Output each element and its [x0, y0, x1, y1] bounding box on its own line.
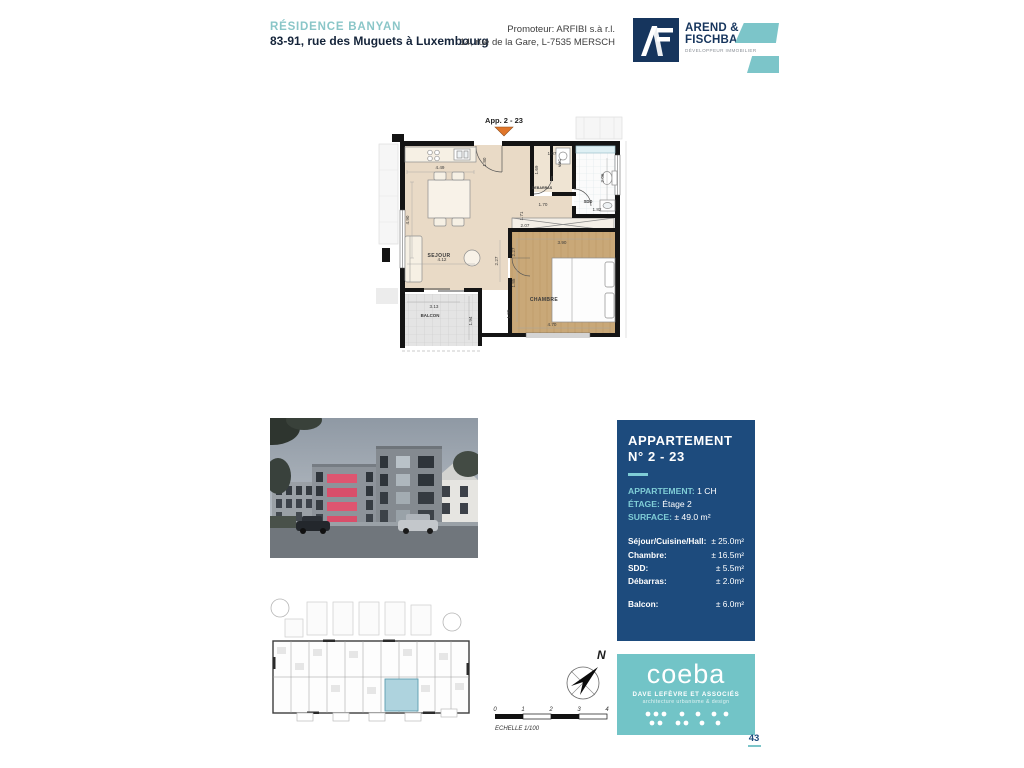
brochure-page: RÉSIDENCE BANYAN 83-91, rue des Muguets … — [0, 0, 1024, 768]
room-row-sdd: SDD:± 5.5m² — [628, 562, 744, 575]
label-debarras: DEBARRAS — [532, 186, 553, 190]
room-row-debarras: Débarras:± 2.0m² — [628, 575, 744, 588]
dim-debarras-top: 1.07 — [548, 151, 557, 156]
scale-ticks: 0 1 2 3 4 — [493, 707, 609, 713]
dim-sdd-right: 2.06 — [600, 173, 605, 182]
page-number-block: 43 — [742, 733, 766, 747]
architect-line1: DAVE LEFÈVRE ET ASSOCIÉS — [633, 691, 740, 698]
scale-tick-4: 4 — [605, 707, 609, 713]
panel-accent-dash — [628, 473, 648, 476]
dim-chambre-bottom: 4.70 — [548, 322, 557, 327]
room-label: Chambre: — [628, 549, 667, 562]
architect-line2: architecture urbanisme & design — [643, 699, 730, 705]
room-areas-list: Séjour/Cuisine/Hall:± 25.0m² Chambre:± 1… — [628, 535, 744, 610]
room-row-sejour: Séjour/Cuisine/Hall:± 25.0m² — [628, 535, 744, 548]
apartment-entrance-marker: App. 2 - 23 — [485, 116, 523, 136]
apartment-label: App. 2 - 23 — [485, 116, 523, 125]
room-label: SDD: — [628, 562, 648, 575]
dim-sdd-bottom: 1.82 — [593, 207, 602, 212]
promoter-line2: 14, rue de la Gare, L-7535 MERSCH — [455, 37, 615, 50]
room-value: ± 5.5m² — [716, 562, 744, 575]
field-surface-label: SURFACE: — [628, 512, 672, 522]
room-value: ± 16.5m² — [711, 549, 744, 562]
page-number: 43 — [742, 733, 766, 744]
field-apartment-value: 1 CH — [695, 486, 717, 496]
dim-chambre-top: 3.90 — [558, 240, 567, 245]
label-balcon: BALCON — [421, 313, 440, 318]
apartment-floor-plan: SEJOUR CHAMBRE BALCON DEBARRAS VMC SDD 4… — [376, 110, 636, 375]
residence-name: RÉSIDENCE BANYAN — [270, 21, 401, 33]
dim-sejour-left: 4.90 — [405, 215, 410, 224]
room-label: Séjour/Cuisine/Hall: — [628, 535, 706, 548]
dim-chambre-left1: 2.27 — [511, 247, 516, 256]
label-chambre: CHAMBRE — [530, 297, 559, 303]
af-monogram-icon — [633, 18, 679, 62]
field-surface: SURFACE: ± 49.0 m² — [628, 511, 744, 524]
building-rendering — [270, 418, 478, 558]
label-vmc: VMC — [558, 159, 562, 167]
key-plan-building — [273, 640, 469, 722]
dim-hall-h1: 1.71 — [519, 211, 524, 220]
dim-hall-w1: 1.70 — [539, 202, 548, 207]
scale-bar: 0 1 2 3 4 ECHELLE 1/100 — [490, 700, 625, 736]
key-plan-terraces — [285, 602, 431, 637]
scale-tick-1: 1 — [521, 707, 524, 713]
room-value: ± 6.0m² — [716, 598, 744, 611]
dim-sejour-bottom: 4.12 — [438, 257, 447, 262]
architect-logo: coeba DAVE LEFÈVRE ET ASSOCIÉS architect… — [617, 654, 755, 735]
braille-dots-icon — [640, 709, 732, 729]
field-floor: ÉTAGE: Étage 2 — [628, 498, 744, 511]
dim-hall-mid: 2.27 — [494, 256, 499, 265]
dim-balcon-right: 1.94 — [468, 316, 473, 325]
dim-balcon-top: 3.13 — [430, 304, 439, 309]
decorative-shape-bottom — [747, 56, 779, 73]
dim-chambre-left3: 1.98 — [506, 309, 511, 318]
dim-sejour-top: 4.49 — [436, 165, 445, 170]
scale-tick-0: 0 — [493, 707, 497, 713]
room-row-balcon: Balcon:± 6.0m² — [628, 598, 744, 611]
highlighted-unit — [385, 679, 418, 711]
room-label: Balcon: — [628, 598, 658, 611]
dim-hall-right: 1.80 — [482, 157, 487, 166]
page-number-accent — [748, 745, 761, 747]
scale-tick-2: 2 — [548, 707, 553, 713]
scale-tick-3: 3 — [577, 707, 581, 713]
developer-tagline: DÉVELOPPEUR IMMOBILIER — [685, 48, 757, 53]
scale-label: ECHELLE 1/100 — [495, 726, 540, 732]
room-label: Débarras: — [628, 575, 667, 588]
label-sdd: SDD — [584, 199, 593, 204]
field-floor-value: Étage 2 — [660, 499, 692, 509]
scale-segments — [495, 714, 607, 719]
entrance-arrow-icon — [495, 127, 513, 136]
room-value: ± 25.0m² — [711, 535, 744, 548]
field-surface-value: ± 49.0 m² — [672, 512, 711, 522]
panel-title-line2: N° 2 - 23 — [628, 449, 744, 465]
field-apartment: APPARTEMENT: 1 CH — [628, 485, 744, 498]
north-label: N — [597, 648, 606, 662]
field-floor-label: ÉTAGE: — [628, 499, 660, 509]
dim-debarras-left: 1.69 — [534, 165, 539, 174]
room-row-chambre: Chambre:± 16.5m² — [628, 549, 744, 562]
promoter-block: Promoteur: ARFIBI s.à r.l. 14, rue de la… — [455, 24, 615, 50]
architect-name: coeba — [647, 661, 726, 688]
panel-title-line1: APPARTEMENT — [628, 433, 744, 449]
key-plan — [263, 593, 478, 733]
apartment-info-panel: APPARTEMENT N° 2 - 23 APPARTEMENT: 1 CH … — [617, 420, 755, 641]
room-value: ± 2.0m² — [716, 575, 744, 588]
field-apartment-label: APPARTEMENT: — [628, 486, 695, 496]
promoter-line1: Promoteur: ARFIBI s.à r.l. — [455, 24, 615, 37]
dim-hall-w2: 2.07 — [521, 223, 530, 228]
dim-chambre-left2: 1.85 — [511, 278, 516, 287]
